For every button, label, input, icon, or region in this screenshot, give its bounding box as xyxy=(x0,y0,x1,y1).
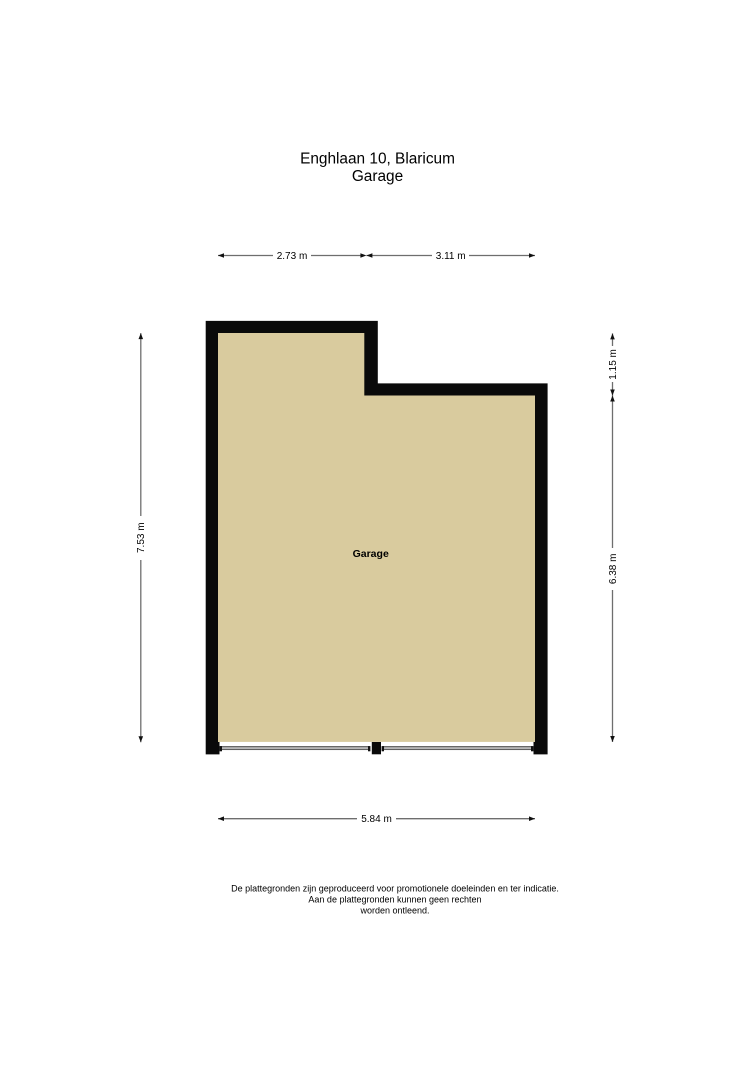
svg-text:6.38 m: 6.38 m xyxy=(608,554,619,585)
svg-text:Enghlaan 10, Blaricum: Enghlaan 10, Blaricum xyxy=(300,150,455,167)
svg-text:Garage: Garage xyxy=(352,168,403,185)
svg-text:7.53 m: 7.53 m xyxy=(136,522,147,553)
svg-text:De plattegronden zijn geproduc: De plattegronden zijn geproduceerd voor … xyxy=(231,883,559,893)
svg-text:Aan de plattegronden kunnen ge: Aan de plattegronden kunnen geen rechten xyxy=(308,895,481,905)
svg-text:worden ontleend.: worden ontleend. xyxy=(359,906,429,916)
svg-text:2.73 m: 2.73 m xyxy=(277,251,308,262)
svg-text:1.15 m: 1.15 m xyxy=(608,349,619,380)
svg-text:5.84 m: 5.84 m xyxy=(361,814,392,825)
svg-text:3.11 m: 3.11 m xyxy=(436,251,466,262)
svg-text:Garage: Garage xyxy=(353,548,389,560)
